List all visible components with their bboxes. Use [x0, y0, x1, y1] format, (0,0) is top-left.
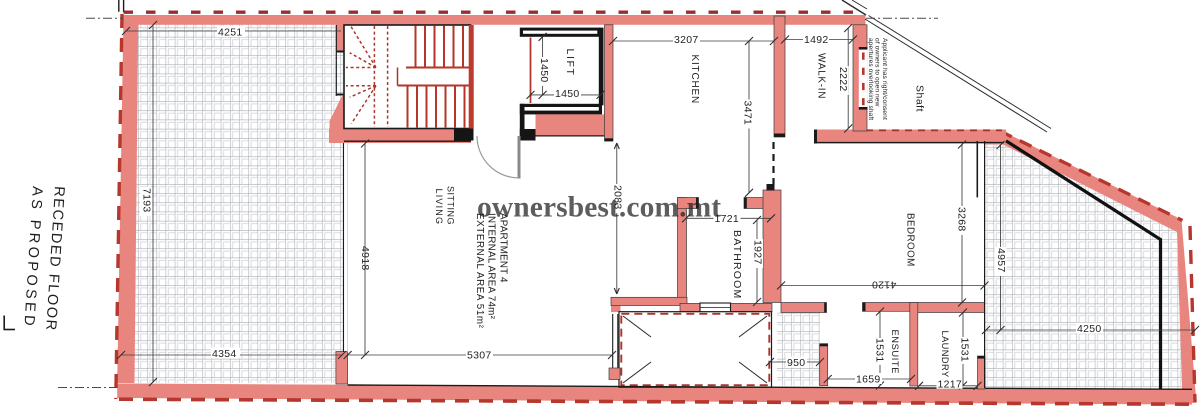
svg-text:1927: 1927 [752, 240, 764, 265]
svg-text:EXTERNAL AREA 51m²: EXTERNAL AREA 51m² [474, 213, 485, 329]
svg-text:4251: 4251 [218, 27, 243, 39]
svg-text:BEDROOM: BEDROOM [905, 213, 916, 267]
svg-text:Shaft: Shaft [914, 85, 926, 112]
svg-text:4957: 4957 [995, 248, 1007, 273]
svg-text:WALK-IN: WALK-IN [816, 53, 827, 99]
svg-text:apertures overlooking shaft: apertures overlooking shaft [867, 38, 874, 120]
svg-text:LIFT: LIFT [564, 49, 576, 77]
svg-text:4354: 4354 [212, 348, 237, 360]
svg-text:1450: 1450 [555, 88, 580, 100]
svg-text:2222: 2222 [837, 67, 849, 92]
svg-text:950: 950 [787, 357, 805, 369]
svg-text:3268: 3268 [956, 207, 968, 232]
svg-text:1217: 1217 [938, 379, 963, 391]
svg-text:3207: 3207 [674, 34, 699, 46]
svg-text:3471: 3471 [742, 101, 754, 126]
svg-text:Applicant has right/consent: Applicant has right/consent [881, 38, 888, 120]
svg-text:4120: 4120 [872, 279, 897, 291]
svg-text:LIVING: LIVING [434, 189, 444, 226]
svg-text:1492: 1492 [804, 34, 829, 46]
svg-text:KITCHEN: KITCHEN [689, 55, 700, 105]
svg-text:1450: 1450 [538, 58, 550, 83]
svg-text:1531: 1531 [959, 338, 971, 363]
svg-text:ENSUITE: ENSUITE [890, 330, 900, 375]
svg-text:1659: 1659 [856, 374, 881, 386]
svg-text:APARTMENT 4: APARTMENT 4 [498, 213, 509, 283]
svg-text:LAUNDRY: LAUNDRY [940, 331, 950, 378]
svg-text:1531: 1531 [874, 338, 886, 363]
svg-text:4250: 4250 [1077, 323, 1102, 335]
svg-text:ownersbest.com.mt: ownersbest.com.mt [477, 192, 721, 224]
svg-text:4918: 4918 [359, 246, 371, 271]
svg-text:5307: 5307 [467, 350, 492, 362]
svg-text:BATHROOM: BATHROOM [731, 230, 743, 300]
svg-text:SITTING: SITTING [446, 186, 456, 225]
svg-text:7193: 7193 [141, 188, 153, 213]
svg-text:INTERNAL AREA 74m²: INTERNAL AREA 74m² [486, 213, 497, 320]
